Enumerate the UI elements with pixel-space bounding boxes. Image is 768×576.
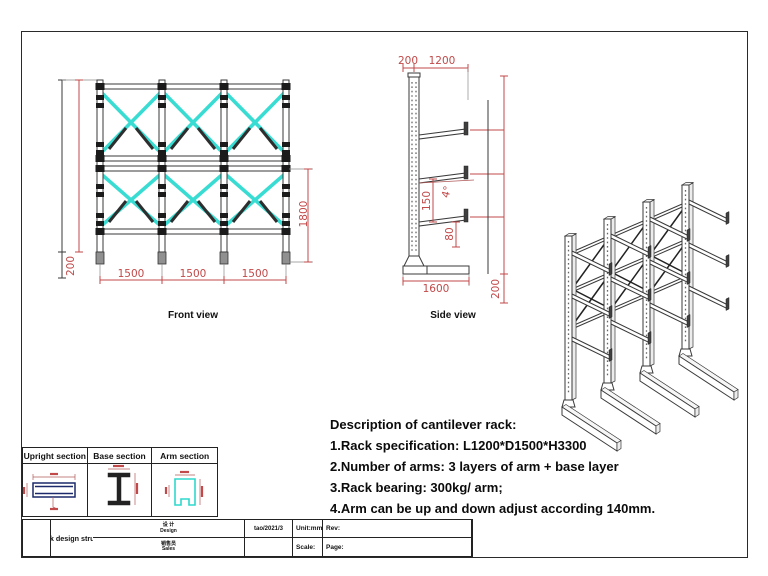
scale-cell: Scale: xyxy=(293,538,323,556)
arm-section-header: Arm section xyxy=(152,448,217,464)
signature-cell xyxy=(23,520,51,556)
description-block: Description of cantilever rack: 1.Rack s… xyxy=(330,414,655,519)
base-section-cell xyxy=(88,464,153,516)
description-line-3: 3.Rack bearing: 300kg/ arm; xyxy=(330,477,655,498)
description-line-2: 2.Number of arms: 3 layers of arm + base… xyxy=(330,456,655,477)
description-line-1: 1.Rack specification: L1200*D1500*H3300 xyxy=(330,435,655,456)
sales-value-cell xyxy=(245,538,293,556)
rev-cell: Rev: xyxy=(323,520,472,538)
section-table: Upright section Base section Arm section xyxy=(22,447,218,517)
description-line-4: 4.Arm can be up and down adjust accordin… xyxy=(330,498,655,519)
arm-section-cell xyxy=(152,464,217,516)
upright-section-cell xyxy=(23,464,88,516)
design-label-cell: 设 计 Design xyxy=(93,520,245,538)
design-label-en: Design xyxy=(160,529,177,535)
drawing-title-cell: Cantilever rack design structure drawing xyxy=(51,520,93,556)
sales-label-cell: 销售员 Sales xyxy=(93,538,245,556)
unit-cell: Unit:mm xyxy=(293,520,323,538)
page-cell: Page: xyxy=(323,538,472,556)
design-value-cell: tao/2021/3 xyxy=(245,520,293,538)
title-block: 设 计 Design tao/2021/3 Unit:mm Rev: Canti… xyxy=(22,519,473,557)
upright-section-header: Upright section xyxy=(23,448,88,464)
sales-label-en: Sales xyxy=(162,547,175,553)
base-section-header: Base section xyxy=(88,448,153,464)
drawing-page: { "front_view": { "label": "Front view",… xyxy=(0,0,768,576)
description-title: Description of cantilever rack: xyxy=(330,414,655,435)
